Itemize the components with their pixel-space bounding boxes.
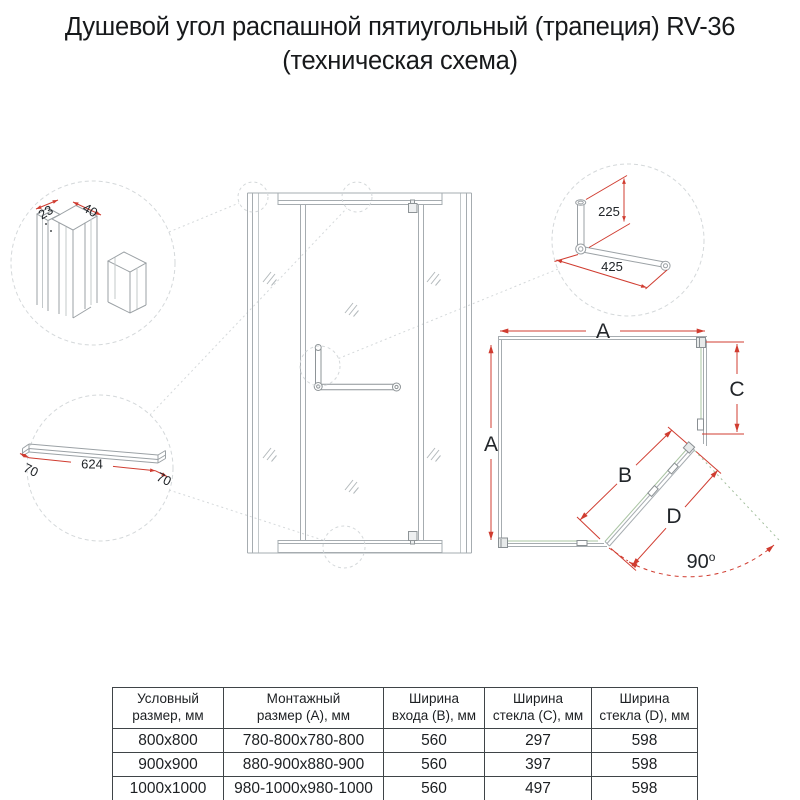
plan-dimensions	[491, 331, 774, 577]
plan-angle-label: 90o	[687, 550, 716, 573]
technical-drawing: 23 40	[0, 0, 800, 680]
cell-glass-d: 598	[592, 777, 698, 800]
table-row: 1000x1000 980-1000x980-1000 560 497 598	[113, 777, 698, 800]
dim-threshold-center: 624	[81, 457, 103, 472]
detail-threshold-section: 624 70 70	[20, 395, 174, 541]
left-wall-profile	[248, 193, 259, 553]
cell-nominal: 1000x1000	[113, 777, 224, 800]
angle-value: 90	[687, 551, 709, 573]
open-door-position	[695, 451, 780, 541]
col-header-glass-c-width: Ширина стекла (С), мм	[485, 688, 592, 729]
table-header-row: Условный размер, мм Монтажный размер (А)…	[113, 688, 698, 729]
dim-handle-vertical: 225	[598, 204, 620, 219]
cell-nominal: 900x900	[113, 753, 224, 777]
col-header-entry-width: Ширина входа (В), мм	[384, 688, 485, 729]
cell-glass-c: 397	[485, 753, 592, 777]
plan-label-b: B	[618, 464, 632, 487]
plan-label-c: C	[729, 378, 744, 401]
plan-label-a-left: A	[484, 433, 498, 456]
plan-door	[605, 446, 695, 547]
bottom-bar	[278, 541, 442, 553]
cell-entry: 560	[384, 753, 485, 777]
detail-connector-lines	[150, 203, 558, 541]
col-header-mounting-size: Монтажный размер (А), мм	[224, 688, 384, 729]
cell-glass-c: 497	[485, 777, 592, 800]
cell-nominal: 800x800	[113, 729, 224, 753]
detail-handle-section: 225 425	[552, 164, 704, 316]
plan-label-a-top: A	[596, 320, 610, 343]
col-header-nominal-size: Условный размер, мм	[113, 688, 224, 729]
cell-entry: 560	[384, 729, 485, 753]
cell-entry: 560	[384, 777, 485, 800]
glass-hatch-marks	[263, 272, 441, 494]
dim-handle-horizontal: 425	[601, 259, 623, 274]
cell-glass-d: 598	[592, 729, 698, 753]
plan-label-d: D	[666, 505, 681, 528]
right-wall-profile	[461, 193, 472, 553]
detail-circle	[552, 164, 704, 316]
detail-profile-section: 23 40	[11, 181, 175, 345]
cell-glass-c: 297	[485, 729, 592, 753]
page: Душевой угол распашной пятиугольный (тра…	[0, 0, 800, 800]
cell-mounting: 980-1000x980-1000	[224, 777, 384, 800]
front-view	[238, 182, 472, 568]
cell-glass-d: 598	[592, 753, 698, 777]
door-handle	[314, 345, 400, 392]
cell-mounting: 880-900x880-900	[224, 753, 384, 777]
size-table: Условный размер, мм Монтажный размер (А)…	[112, 687, 698, 800]
table-row: 900x900 880-900x880-900 560 397 598	[113, 753, 698, 777]
col-header-glass-d-width: Ширина стекла (D), мм	[592, 688, 698, 729]
table-row: 800x800 780-800x780-800 560 297 598	[113, 729, 698, 753]
angle-unit: o	[709, 550, 716, 564]
plan-view: A A C B D 90o	[484, 320, 779, 577]
top-bar	[278, 193, 442, 205]
cell-mounting: 780-800x780-800	[224, 729, 384, 753]
